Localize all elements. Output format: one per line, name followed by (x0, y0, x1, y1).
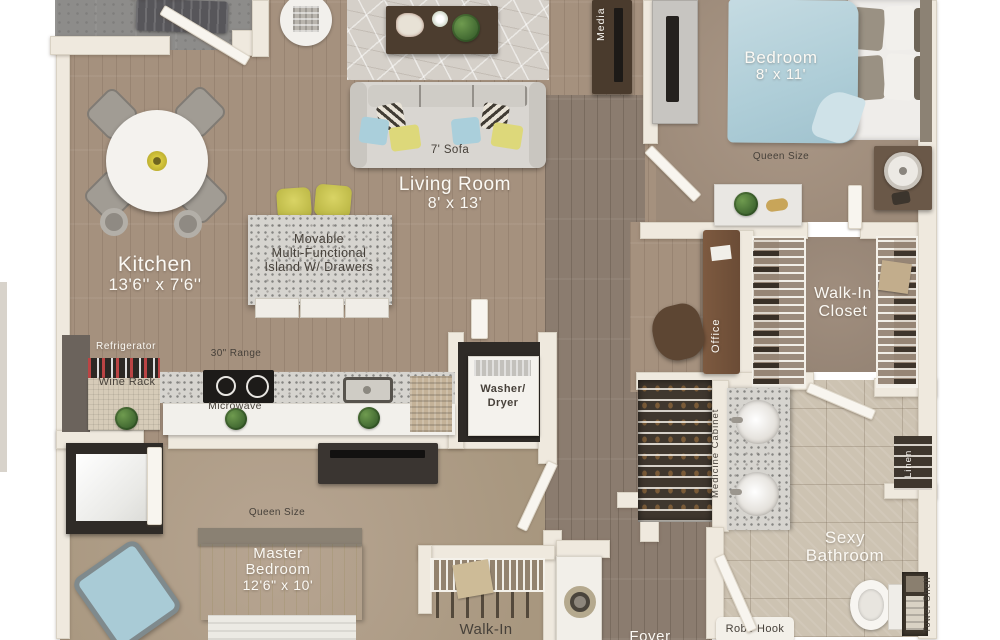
tv (614, 8, 623, 82)
wine-bottles (88, 358, 160, 378)
sofa-pillow-blue (451, 117, 482, 146)
island-drawer (300, 298, 344, 318)
sink-drain (363, 386, 371, 394)
wall-balcony-sill (50, 36, 170, 55)
master-closet-hangers (436, 592, 540, 618)
bedroom-queen-label: Queen Size (731, 152, 831, 163)
master-closet-box (452, 559, 493, 599)
closet-door (848, 185, 862, 229)
walkin-closet-label-2: Closet (793, 303, 893, 320)
flowers (432, 11, 448, 27)
bathroom-label-2: Bathroom (795, 547, 895, 565)
media-label: Media (596, 2, 612, 46)
bedroom-dim-label: 8' x 11' (741, 67, 821, 83)
island-label-3: Island W/ Drawers (259, 261, 379, 275)
medicine-closet (638, 380, 712, 522)
coffee-table-tray (396, 13, 424, 37)
wine-rack-label: Wine Rack (87, 377, 167, 389)
window-rail-left (0, 282, 7, 472)
wicker-hamper (410, 376, 452, 432)
refrigerator-label: Refrigerator (86, 342, 166, 353)
medicine-cabinet-label: Medicine Cabinet (711, 398, 727, 508)
bedroom-tv (666, 16, 679, 102)
bed-headboard (920, 0, 932, 142)
sofa-pillow-yellow (490, 122, 523, 150)
bedroom-name-label: Bedroom (731, 49, 831, 67)
sink (736, 400, 780, 444)
faucet (731, 417, 743, 423)
counter-plant (115, 407, 138, 430)
master-bed-sheet (208, 615, 356, 640)
floor-plan: Robe Hook 56' x 16' (0, 0, 1000, 640)
bed-pillow (883, 53, 916, 101)
master-dim-label: 12'6" x 10' (228, 578, 328, 593)
microwave-label: Microwave (195, 401, 275, 412)
console-plant (734, 192, 758, 216)
burner (216, 376, 236, 396)
coffee-table-plant (452, 14, 480, 42)
master-queen-label: Queen Size (237, 508, 317, 519)
bathroom-label-1: Sexy (795, 529, 895, 547)
kitchen-dim-label: 13'6'' x 7'6'' (85, 276, 225, 294)
living-name-label: Living Room (385, 175, 525, 196)
towel-shelf-label: Towel Shelf (923, 570, 938, 638)
island-drawer (345, 298, 389, 318)
washer-label-1: Washer/ (463, 384, 543, 396)
toilet-seat (858, 589, 884, 621)
island-label-2: Multi-Functional (259, 247, 379, 261)
washer-dryer-top (474, 360, 531, 376)
foyer-label: Foyer (618, 629, 682, 640)
range-label: 30" Range (196, 349, 276, 360)
sink (735, 472, 779, 516)
mirror-cabinet-panel (76, 454, 148, 521)
laundry-door (471, 299, 488, 339)
faucet (730, 489, 742, 495)
door-wreath-center (574, 596, 586, 608)
master-tv (330, 450, 425, 458)
kitchen-name-label: Kitchen (95, 254, 215, 277)
pendant-light (174, 210, 202, 238)
wall-balcony-right (252, 0, 269, 57)
master-door (147, 447, 162, 525)
washer-label-2: Dryer (463, 398, 543, 410)
desk-paper (710, 245, 732, 261)
side-table-tray (293, 6, 319, 32)
hanging-clothes (753, 240, 779, 384)
pendant-light (100, 208, 128, 236)
master-label-1: Master (228, 546, 328, 562)
burner (246, 375, 269, 398)
living-dim-label: 8' x 13' (395, 195, 515, 212)
master-label-2: Bedroom (228, 562, 328, 578)
island-stool (314, 183, 353, 218)
balcony-dim-label: 56' x 16' (95, 0, 225, 4)
lamp-finial (899, 167, 907, 175)
island-drawer (255, 298, 299, 318)
table-centerpiece (147, 151, 167, 171)
bed-pillow (884, 5, 916, 51)
sofa-label: 7' Sofa (410, 144, 490, 156)
walkin-closet-label-1: Walk-In (793, 285, 893, 302)
office-label: Office (711, 308, 727, 363)
counter-plant (358, 407, 380, 429)
sofa-arm-right (529, 82, 546, 168)
sofa-pillow-blue (358, 116, 389, 146)
island-label-1: Movable (259, 233, 379, 247)
console-table (714, 184, 802, 226)
linen-label: Linen (904, 442, 919, 486)
master-walkin-label: Walk-In (446, 622, 526, 638)
